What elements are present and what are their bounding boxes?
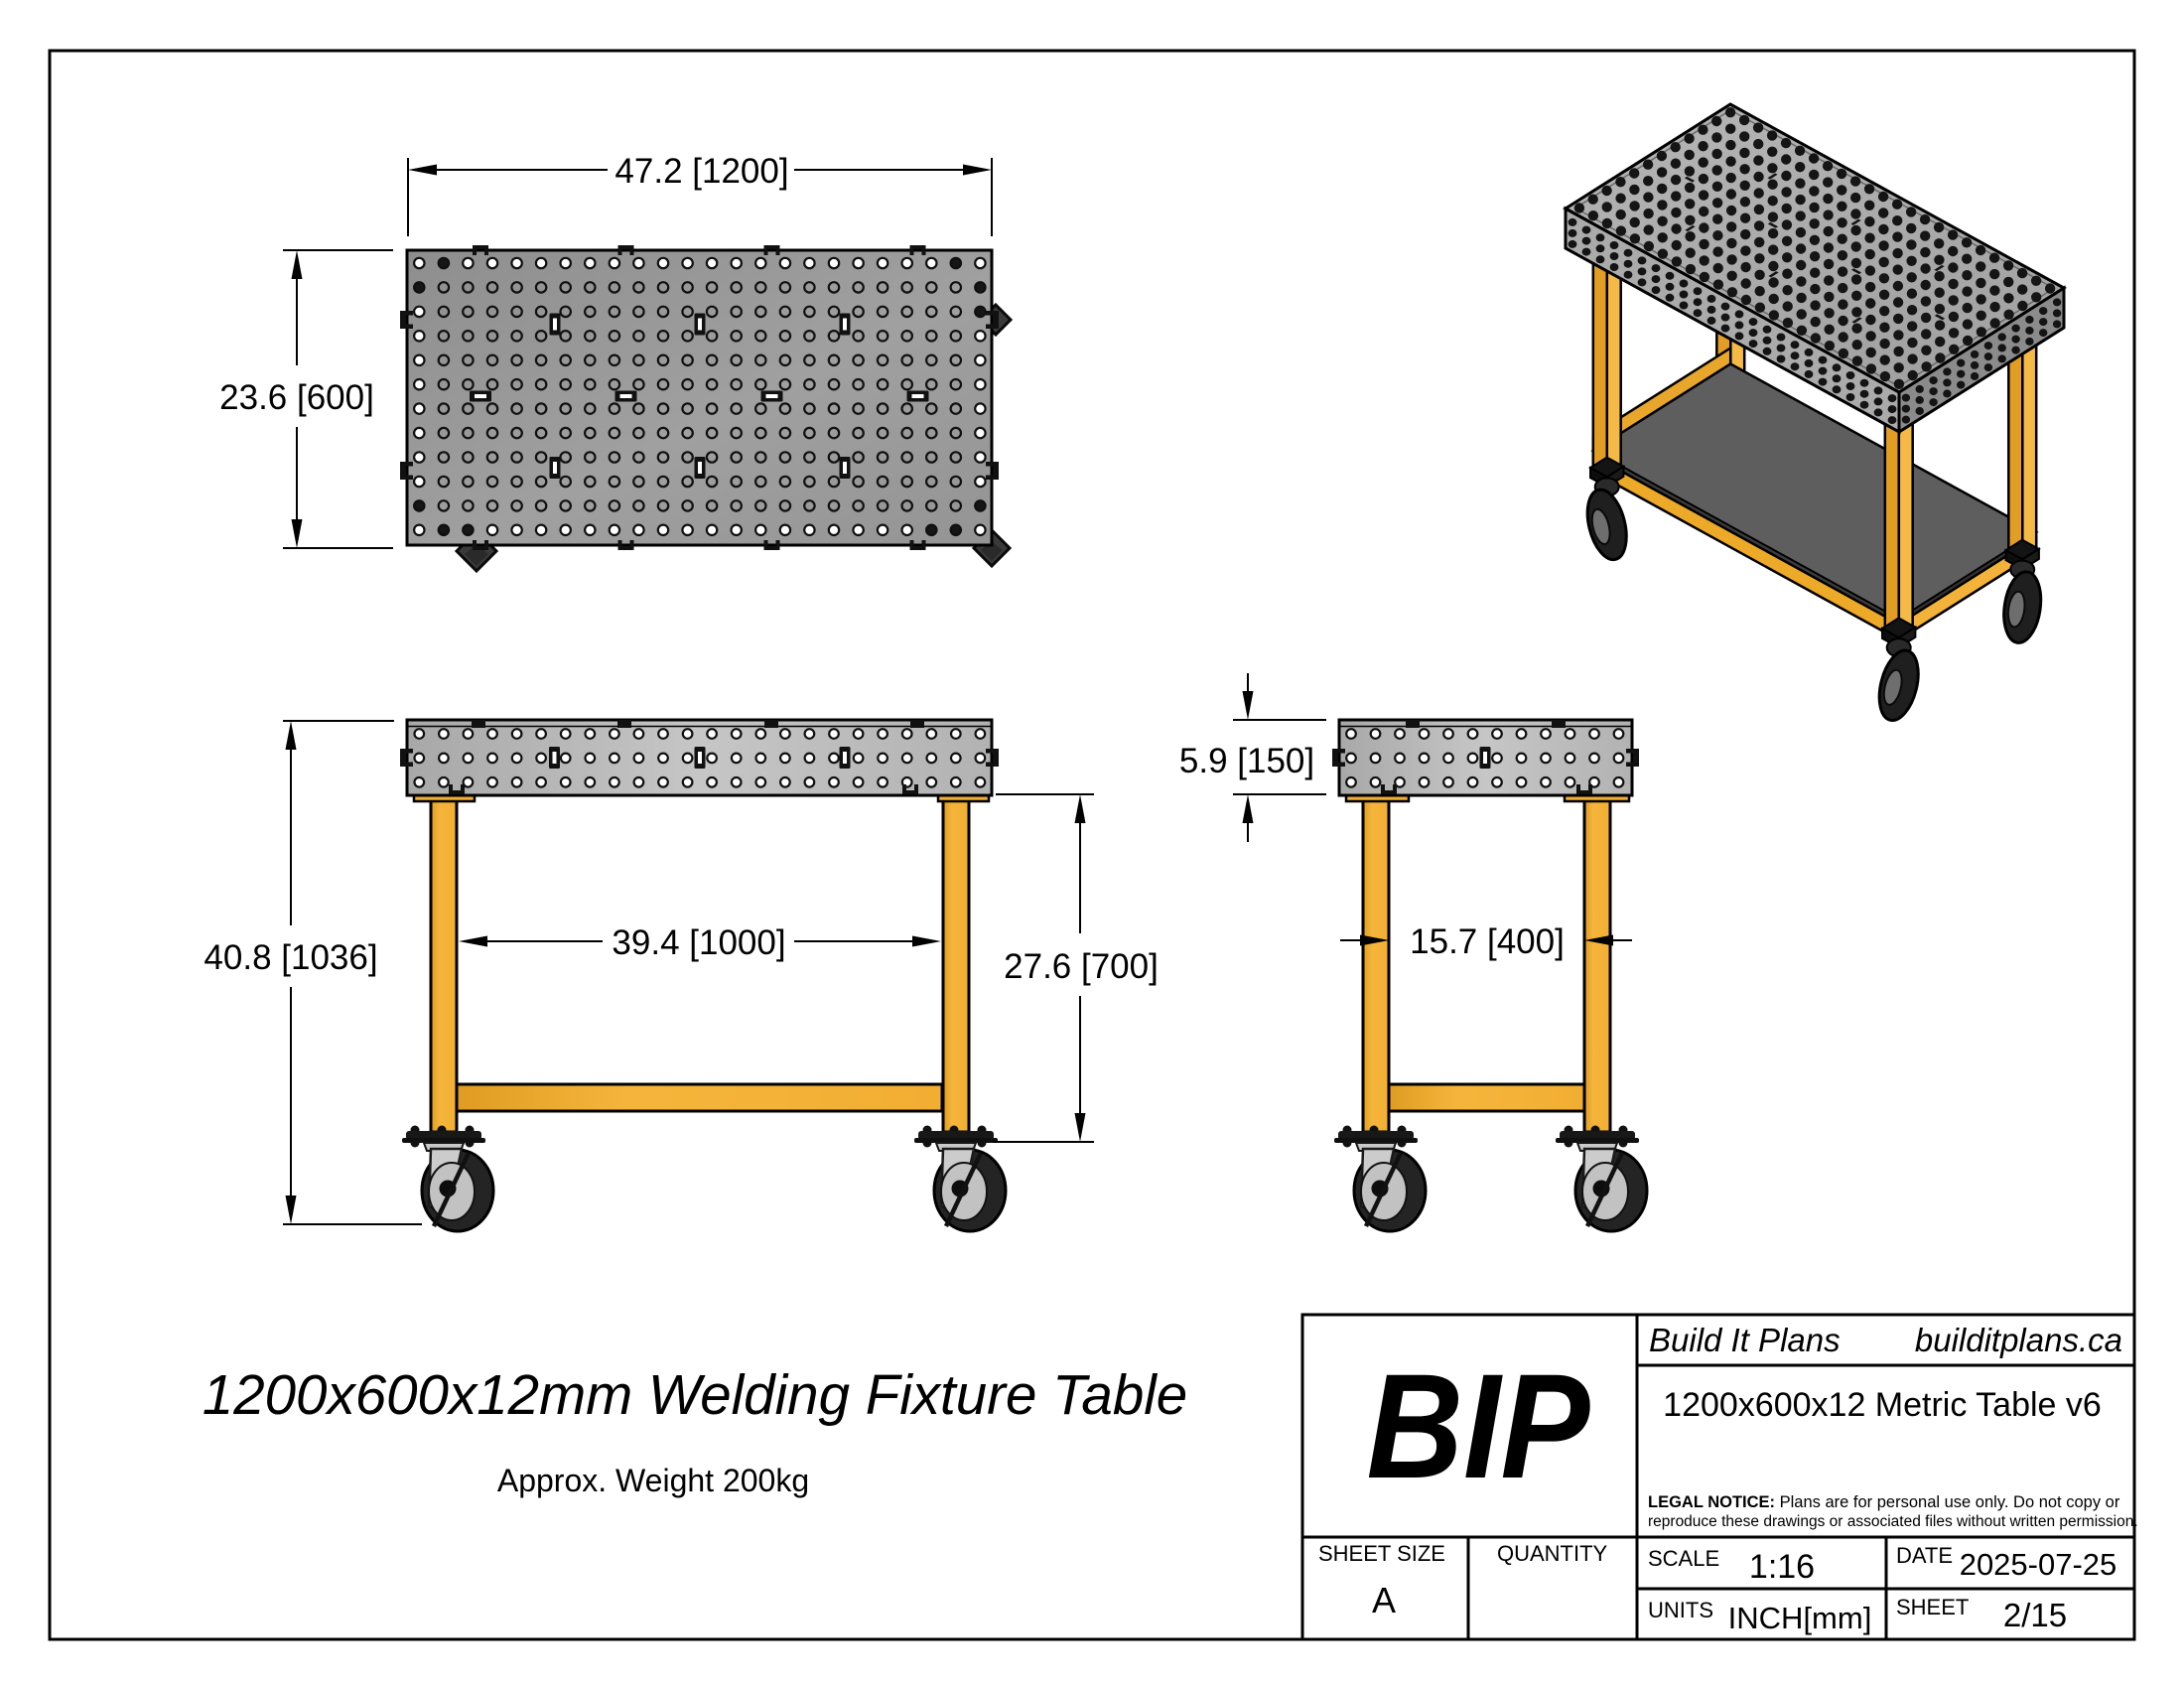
svg-text:47.2 [1200]: 47.2 [1200] <box>614 152 788 191</box>
svg-text:builditplans.ca: builditplans.ca <box>1915 1322 2122 1358</box>
svg-text:SHEET: SHEET <box>1896 1595 1969 1619</box>
svg-text:15.7 [400]: 15.7 [400] <box>1410 922 1565 961</box>
svg-text:Build It Plans: Build It Plans <box>1649 1322 1841 1358</box>
svg-text:5.9 [150]: 5.9 [150] <box>1179 742 1314 780</box>
svg-text:DATE: DATE <box>1896 1543 1953 1568</box>
svg-text:1:16: 1:16 <box>1749 1548 1815 1586</box>
svg-text:2025-07-25: 2025-07-25 <box>1960 1547 2117 1582</box>
svg-text:QUANTITY: QUANTITY <box>1497 1541 1608 1566</box>
svg-text:SHEET SIZE: SHEET SIZE <box>1318 1541 1445 1566</box>
svg-text:UNITS: UNITS <box>1648 1598 1713 1622</box>
svg-text:A: A <box>1372 1580 1396 1620</box>
svg-text:Approx. Weight 200kg: Approx. Weight 200kg <box>497 1463 809 1498</box>
svg-text:40.8 [1036]: 40.8 [1036] <box>204 938 377 977</box>
svg-text:27.6 [700]: 27.6 [700] <box>1004 947 1159 986</box>
svg-text:INCH[mm]: INCH[mm] <box>1728 1601 1872 1635</box>
svg-text:reproduce these drawings or as: reproduce these drawings or associated f… <box>1648 1513 2138 1530</box>
svg-text:1200x600x12 Metric Table v6: 1200x600x12 Metric Table v6 <box>1663 1386 2102 1424</box>
svg-text:1200x600x12mm Welding Fixture: 1200x600x12mm Welding Fixture Table <box>203 1363 1187 1426</box>
svg-text:BIP: BIP <box>1367 1342 1591 1509</box>
svg-text:2/15: 2/15 <box>2003 1597 2067 1633</box>
svg-text:LEGAL NOTICE: Plans are for pe: LEGAL NOTICE: Plans are for personal use… <box>1648 1493 2120 1511</box>
svg-text:SCALE: SCALE <box>1648 1546 1719 1571</box>
svg-text:23.6 [600]: 23.6 [600] <box>219 378 374 417</box>
svg-text:39.4 [1000]: 39.4 [1000] <box>612 923 785 962</box>
